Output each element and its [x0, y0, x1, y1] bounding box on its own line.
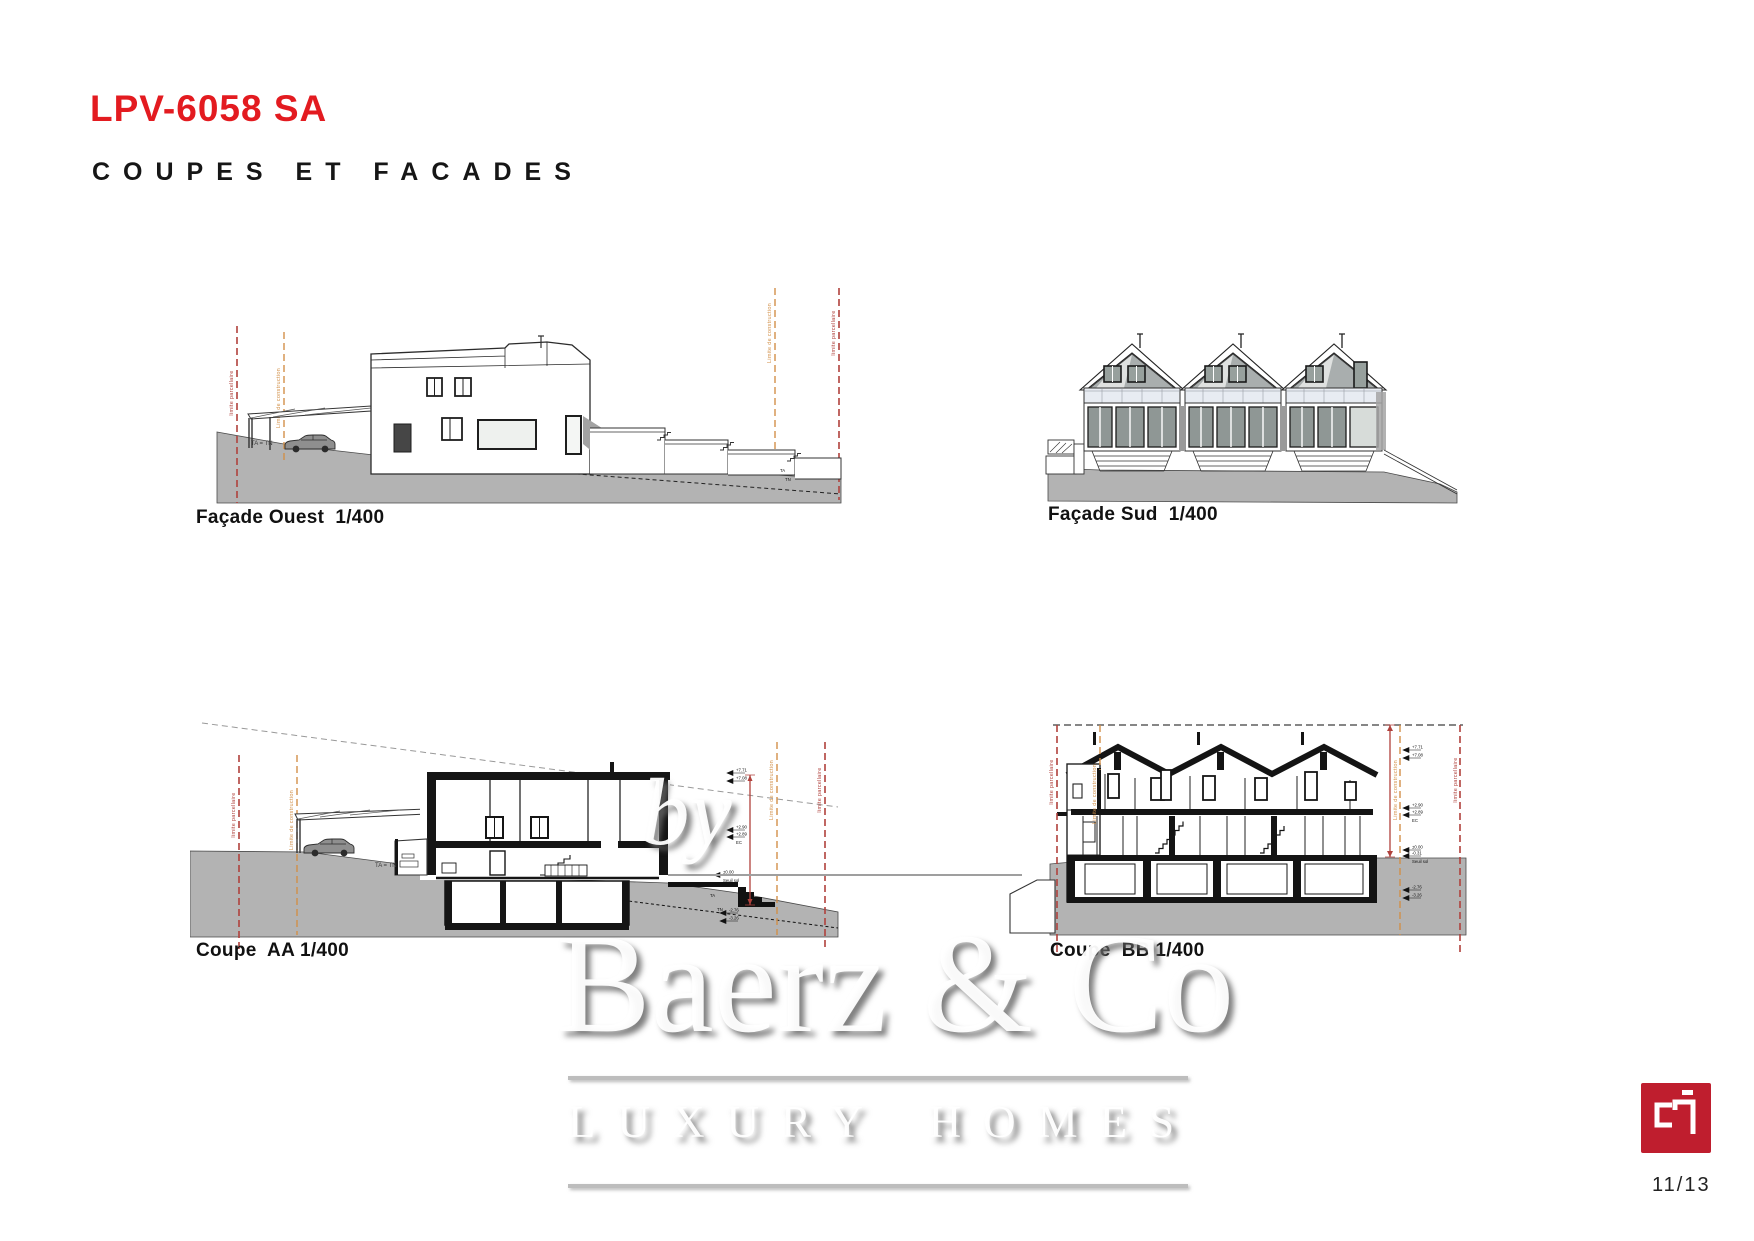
svg-text:+2.89: +2.89: [736, 832, 747, 837]
basement: [1067, 861, 1377, 903]
entry-steps: [1092, 451, 1172, 471]
chimney: [1137, 334, 1143, 348]
left-wall: [427, 780, 436, 875]
ta-label: TA: [710, 893, 715, 898]
entry-steps: [1193, 451, 1273, 471]
tn-label: TN: [785, 477, 791, 482]
svg-text:EC: EC: [1412, 818, 1418, 823]
limit-label: Limite de construction: [767, 303, 773, 363]
svg-text:+7.08: +7.08: [1412, 753, 1423, 758]
facade-ouest-drawing: limite parcellaire Limite de constructio…: [195, 278, 855, 508]
svg-text:-0.31: -0.31: [1412, 851, 1422, 856]
ground-slab: [1067, 855, 1377, 861]
left-annex: [395, 839, 427, 875]
svg-text:+2.90: +2.90: [1412, 803, 1423, 808]
upper-slab: [1071, 809, 1373, 815]
terraces: [590, 428, 841, 479]
elevation-mark: EC: [736, 840, 742, 845]
elevation-mark: +7.71: [1403, 745, 1423, 753]
ta-label: TA: [780, 468, 785, 473]
side-shadow: [1376, 392, 1386, 450]
elevation-mark: -0.31: [1403, 851, 1422, 859]
retaining-walls: [1046, 440, 1084, 474]
facade-sud-drawing: [1040, 322, 1470, 507]
chimney: [1238, 334, 1244, 348]
unit-joint: [1179, 406, 1185, 451]
svg-text:EC: EC: [736, 840, 742, 845]
unit-joint: [1280, 406, 1286, 451]
elevation-mark: +2.89: [1403, 810, 1423, 818]
limit-label: limite parcellaire: [817, 767, 823, 812]
chimney: [1197, 732, 1200, 745]
elevation-mark: Seuil sol: [1412, 859, 1428, 864]
page-subtitle: COUPES ET FACADES: [92, 158, 584, 187]
limit-label: limite parcellaire: [1453, 757, 1459, 802]
limit-label: limite parcellaire: [229, 370, 235, 415]
caption-facade-ouest: Façade Ouest 1/400: [196, 507, 384, 529]
facade-sud-figure: [1040, 322, 1470, 507]
dimension-line: [745, 775, 755, 905]
page-number: 11/13: [1652, 1174, 1711, 1197]
sheet: LPV-6058 SA COUPES ET FACADES limite par…: [0, 0, 1754, 1241]
caption-coupe-aa: Coupe AA 1/400: [196, 940, 349, 962]
limit-label: Limite de construction: [1092, 764, 1098, 824]
terrain-label: TA = TN: [375, 863, 397, 869]
elevation-mark: EC: [1412, 818, 1418, 823]
limit-label: Limite de construction: [276, 368, 282, 428]
house-unit: [1282, 334, 1386, 471]
watermark-by: by: [642, 765, 732, 860]
caption-facade-sud: Façade Sud 1/400: [1048, 504, 1218, 526]
floor-slab: [436, 841, 601, 848]
page-title: LPV-6058 SA: [90, 88, 327, 130]
chimney: [610, 762, 614, 772]
entry-steps: [1294, 451, 1374, 471]
chimney: [1339, 334, 1345, 348]
chimney: [1093, 732, 1096, 745]
house-unit: [1181, 334, 1285, 471]
svg-text:+2.89: +2.89: [1412, 810, 1423, 815]
terrain-label: TA = TN: [251, 441, 273, 447]
svg-text:±0.00: ±0.00: [1412, 845, 1423, 850]
terrain: [1048, 468, 1457, 503]
brand-logo-icon: [1641, 1083, 1711, 1153]
watermark-tagline: LUXURY HOMES: [568, 1100, 1196, 1145]
svg-text:-3.26: -3.26: [1412, 893, 1422, 898]
building-section: [1057, 732, 1377, 903]
elevation-mark: +7.08: [1403, 753, 1423, 761]
svg-text:+2.90: +2.90: [736, 825, 747, 830]
house: [371, 336, 605, 474]
limit-label: Limite de construction: [289, 790, 295, 850]
house-unit: [1080, 334, 1184, 471]
level-reference-line: [668, 874, 1022, 876]
svg-text:Seuil sol: Seuil sol: [723, 878, 739, 883]
svg-text:-2.76: -2.76: [1412, 885, 1422, 890]
svg-text:+7.71: +7.71: [1412, 745, 1423, 750]
svg-text:+7.08: +7.08: [736, 776, 747, 781]
svg-text:Seuil sol: Seuil sol: [1412, 859, 1428, 864]
roof-slab: [427, 772, 670, 780]
elevation-mark: Seuil sol: [723, 878, 739, 883]
watermark-divider-top: [568, 1076, 1188, 1080]
limit-label: Limite de construction: [769, 760, 775, 820]
limit-label: limite parcellaire: [1049, 759, 1055, 804]
svg-text:+7.71: +7.71: [736, 768, 747, 773]
watermark-brand: Baerz & Co: [556, 912, 1234, 1054]
watermark-divider-bottom: [568, 1184, 1188, 1188]
limit-label: limite parcellaire: [831, 310, 837, 355]
limit-label: Limite de construction: [1393, 760, 1399, 820]
chimney: [1301, 732, 1304, 745]
limit-label: limite parcellaire: [231, 792, 237, 837]
balcony-slab: [1057, 812, 1067, 816]
facade-ouest-figure: limite parcellaire Limite de constructio…: [195, 278, 855, 508]
entry-door: [394, 424, 411, 452]
